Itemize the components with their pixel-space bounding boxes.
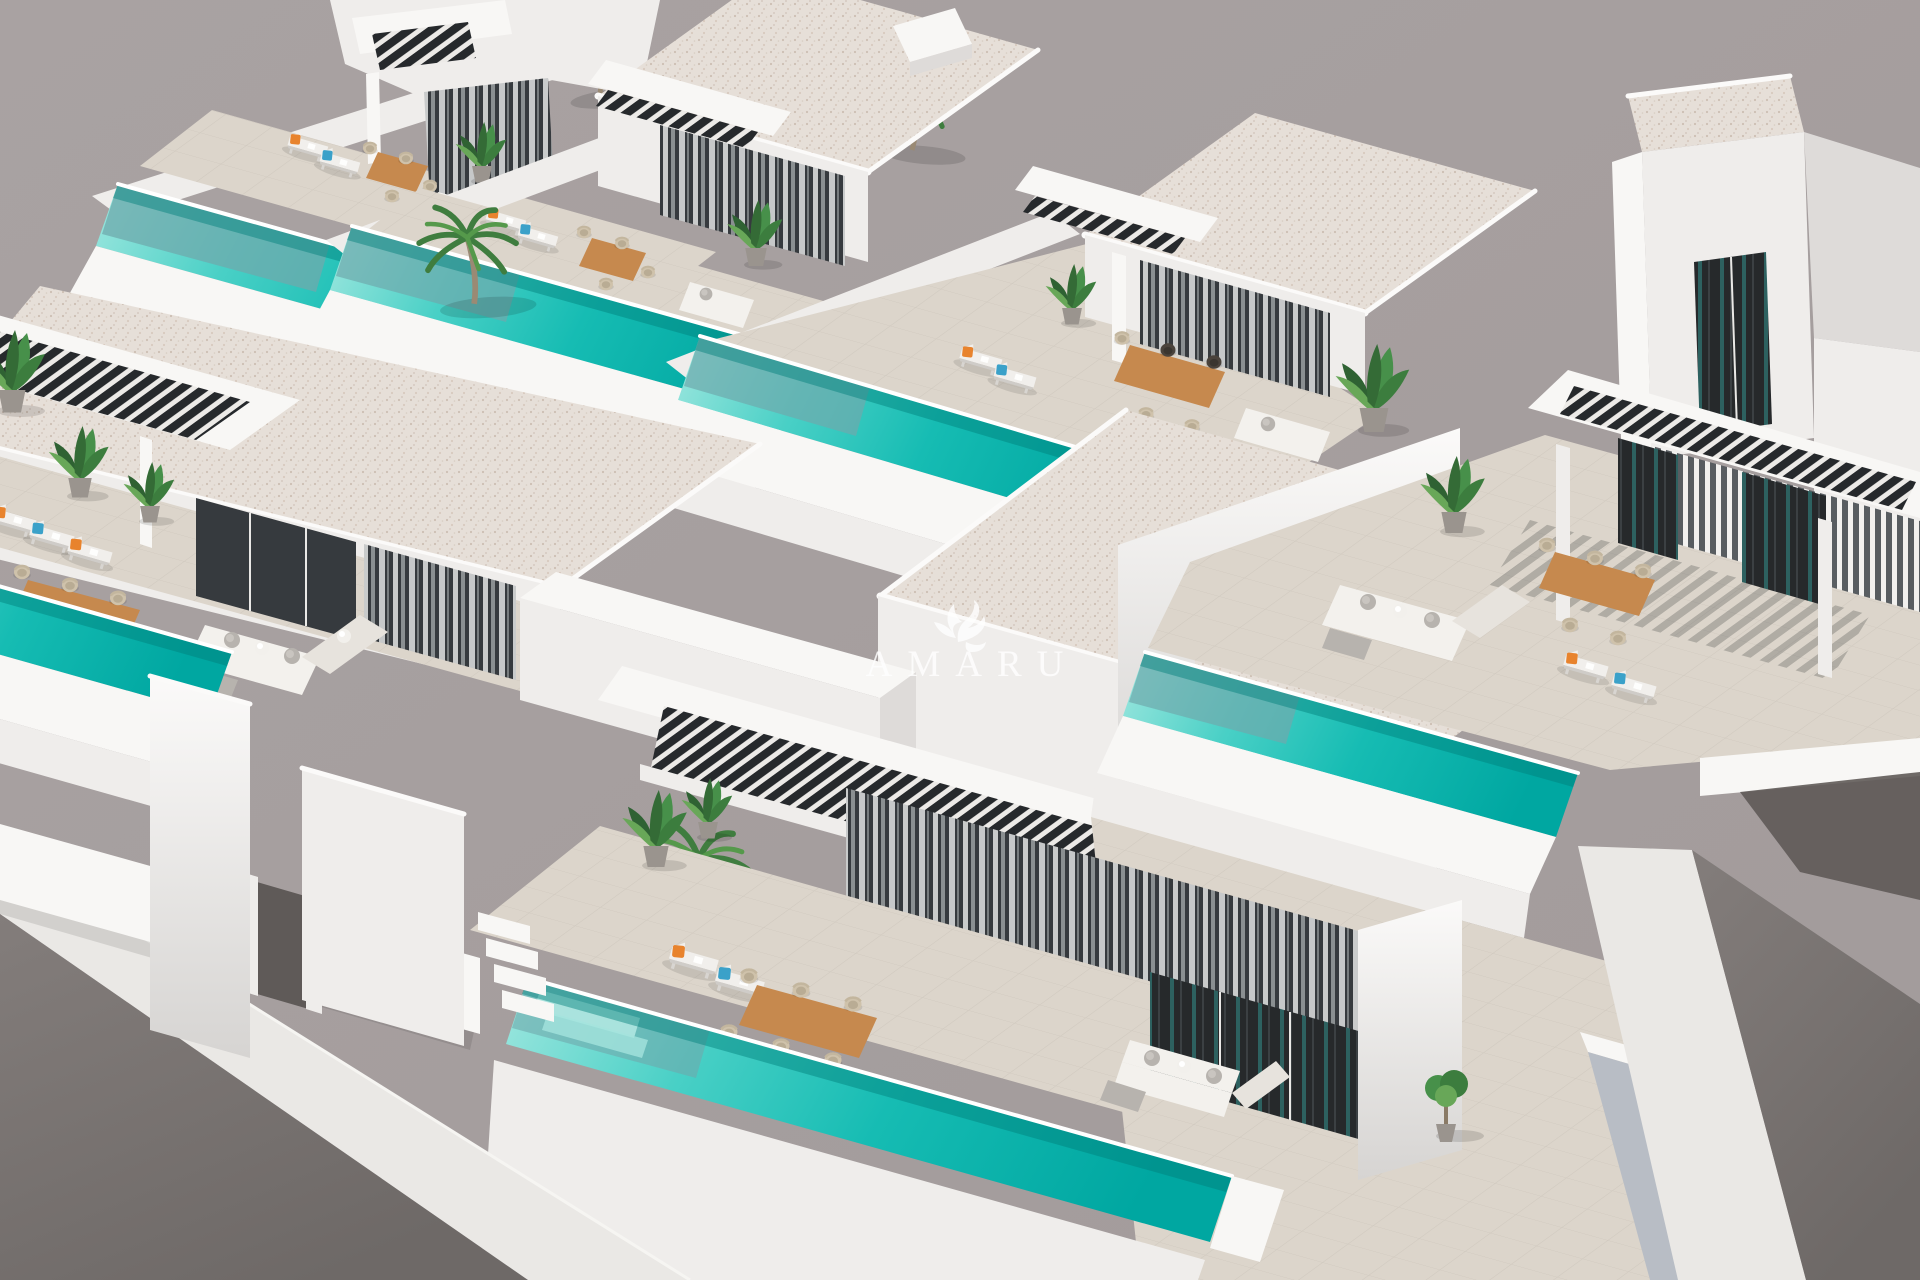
- dining-chair: [61, 578, 79, 592]
- dining-chair: [792, 982, 811, 997]
- glass-door: [1618, 438, 1678, 560]
- dining-chair: [13, 565, 31, 579]
- dining-chair: [1586, 551, 1604, 565]
- dining-chair: [614, 237, 629, 250]
- watermark-text: AMARU: [866, 644, 1079, 685]
- dividing-wall: [150, 676, 250, 1058]
- dining-chair: [398, 152, 413, 165]
- dining-chair: [598, 278, 613, 291]
- dining-chair: [1609, 631, 1627, 645]
- dining-chair: [384, 190, 399, 203]
- dining-chair: [740, 968, 759, 983]
- render-image: AMARU: [0, 0, 1920, 1280]
- dining-chair: [1634, 564, 1652, 578]
- dining-chair: [1561, 618, 1579, 632]
- dining-chair: [362, 142, 377, 155]
- dining-chair: [1114, 331, 1131, 345]
- column: [1818, 518, 1832, 678]
- column: [1112, 252, 1126, 364]
- dining-chair: [640, 266, 655, 279]
- dining-chair: [576, 226, 591, 239]
- villa-development-render: AMARU: [0, 0, 1920, 1280]
- dining-chair: [1538, 538, 1556, 552]
- dividing-wall: [302, 768, 464, 1046]
- column: [1556, 444, 1570, 624]
- dining-chair: [844, 996, 863, 1011]
- dining-chair: [109, 591, 127, 605]
